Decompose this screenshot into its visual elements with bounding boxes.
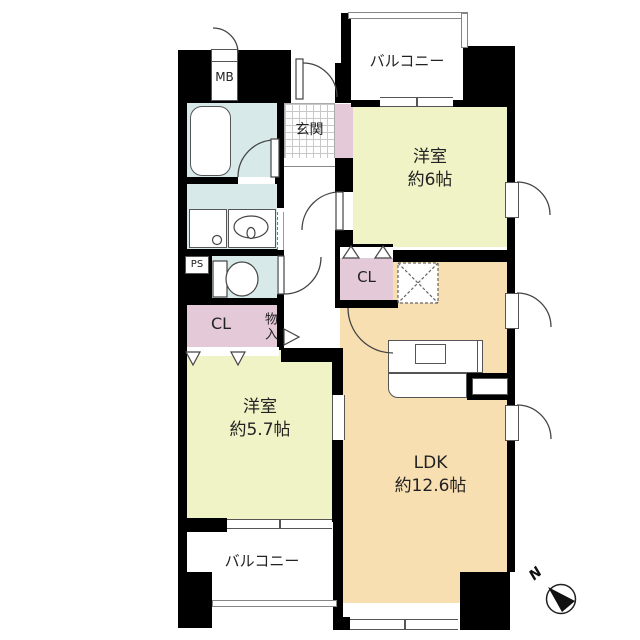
window-right-ldk-upper [505,293,519,329]
window-right-ldk-lower [505,405,519,441]
wall-balcony-ldk-foot [333,617,350,630]
kitchen-counter-lower [388,373,467,398]
bedroom1-door-opening [335,192,353,230]
bedroom1-label: 洋室 約6帖 [360,146,500,192]
window-right-bedroom1 [505,182,519,218]
toilet-door-opening [277,256,284,294]
entrance-door-arc [303,63,337,97]
bath-door-opening [238,177,275,184]
wall-bottom-left-block [178,572,212,628]
window-bedroom2-bottom [227,519,332,529]
closet-upper-door-strip [340,247,393,258]
wall-left [178,103,187,572]
bathtub [190,106,231,176]
meter-box-divider [211,61,238,62]
window-balcony-top [380,97,453,107]
ldk-size: 約12.6帖 [358,475,503,498]
ps-label: PS [185,259,209,271]
toilet-door-arc [284,257,321,294]
vanity-counter [228,209,276,248]
window-ldk-bottom [350,619,458,630]
genkan-label: 玄関 [283,122,336,139]
floor-plan: バルコニー MB 玄関 洋室 約6帖 CL PS CL 物入 洋室 約5.7帖 … [0,0,640,640]
bedroom1-size: 約6帖 [360,169,500,192]
window-arc-ldk-upper [517,293,551,327]
bedroom2-size: 約5.7帖 [190,419,330,442]
balcony-bottom-railing [212,600,337,607]
closet-lower-door-strip [187,347,279,356]
compass-north-label: N [526,564,545,584]
closet-lower-label: CL [187,314,255,333]
wall-bedroom1-top-b [453,100,511,107]
compass-circle [547,585,576,614]
washroom-sliding-door [277,212,284,250]
window-arc-ldk-lower [517,405,551,439]
window-arc-bedroom1 [517,182,550,215]
ldk-label: LDK 約12.6帖 [358,452,503,498]
window-bedroom2-ldk [332,395,345,440]
room-toilet [212,256,277,298]
wall-closet-upper-bottom [335,300,398,308]
wall-toilet-closet-divider [183,298,284,305]
bedroom2-label: 洋室 約5.7帖 [190,396,330,442]
wall-balcony-ldk [333,522,343,630]
ldk-name: LDK [358,452,503,475]
wall-right [507,103,515,572]
storage-door-mark [284,329,299,345]
wall-hall-right-a [335,158,353,192]
bedroom2-name: 洋室 [190,396,330,419]
mb-label: MB [211,70,238,84]
wall-bedroom1-bottom [393,250,511,262]
wall-bedroom2-bottom [180,518,227,532]
wall-bedroom2-ldk-a [332,348,343,395]
wall-hall-left-a [277,103,284,208]
kitchen-sink [415,344,446,364]
storage-label: 物入 [259,307,277,347]
balcony-top-label: バルコニー [345,52,469,70]
plan-annotations-overlay [0,0,640,640]
balcony-top-railing-right [461,13,468,48]
compass-needle [548,587,575,612]
wall-storage-right [279,300,284,350]
genkan-step [284,158,335,167]
wall-bottom-right-block [460,572,510,630]
wall-balcony-top-right-block [463,46,515,103]
wall-bedroom1-top-a [351,100,380,107]
kitchen-partition-inset [472,378,508,395]
wall-bath-wash-divider-a [185,177,238,184]
closet-upper-label: CL [340,268,393,286]
balcony-bottom-label: バルコニー [200,552,324,570]
bedroom1-name: 洋室 [360,146,500,169]
balcony-top-railing [348,12,468,19]
wall-bedroom2-ldk-b [332,440,343,522]
washing-machine-pan [189,209,227,248]
entrance-door-leaf [296,59,303,99]
shoe-cabinet [335,104,353,158]
kitchen-counter-divider [477,341,478,372]
